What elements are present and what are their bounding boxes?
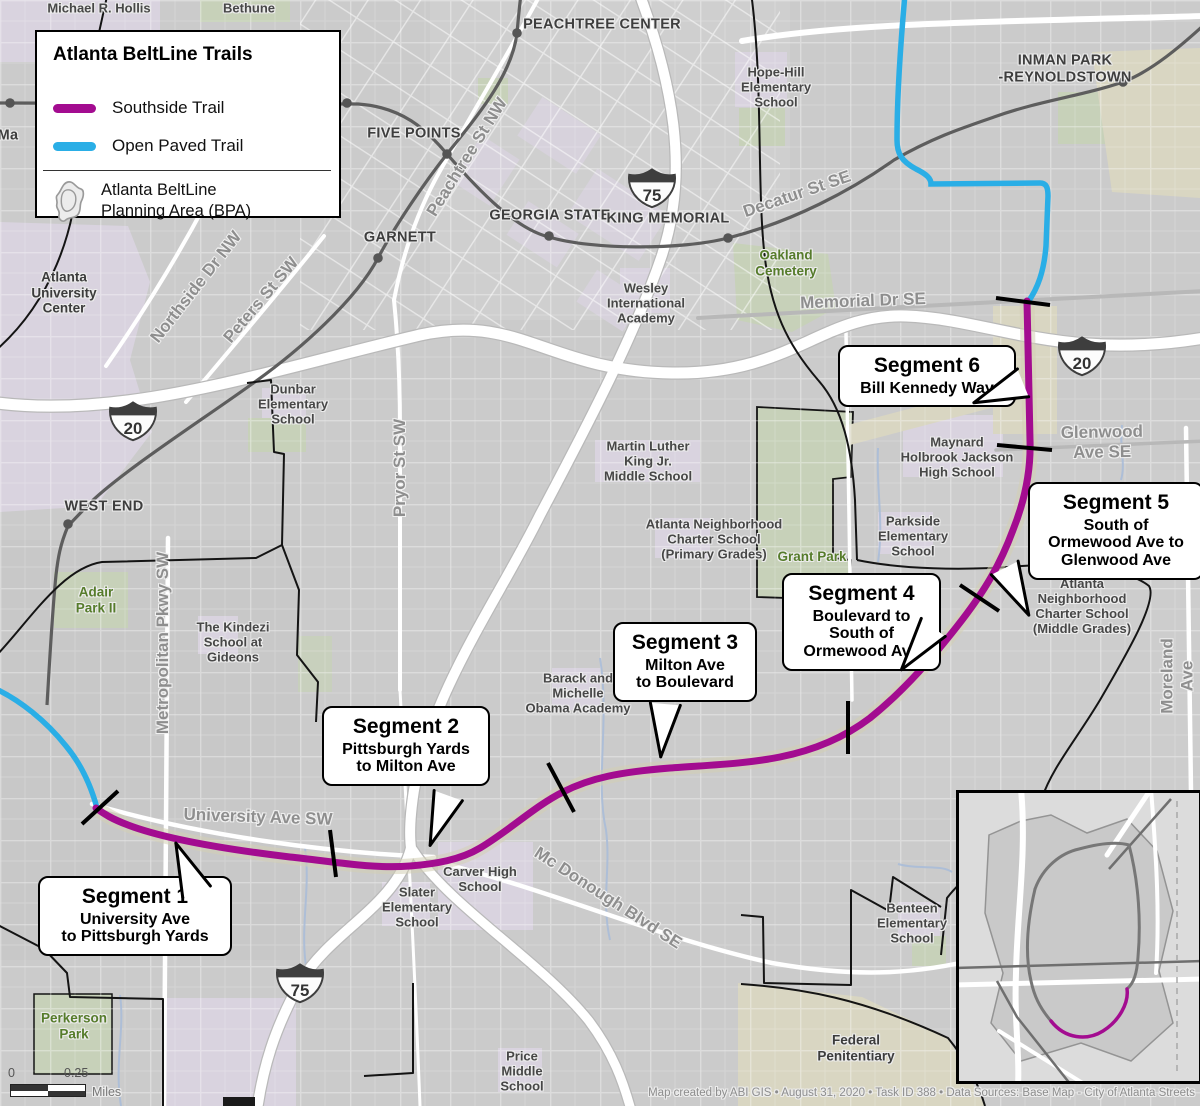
beltline-planning-area-outline-icon — [49, 178, 87, 224]
shield-number: 75 — [643, 186, 662, 205]
scale-bar-graphic — [10, 1084, 86, 1097]
callout-title: Segment 6 — [846, 354, 1008, 378]
station-label-five-points: FIVE POINTS — [367, 126, 461, 143]
southside-trail-swatch-icon — [53, 104, 96, 113]
station-label-partial: Ma — [0, 128, 18, 145]
school-label-slater: Slater Elementary School — [382, 886, 452, 931]
road-label-glenwood-ave: Glenwood Ave SE — [1053, 422, 1152, 463]
callout-title: Segment 4 — [790, 582, 933, 606]
map-credits: Map created by ABI GIS • August 31, 2020… — [648, 1087, 1195, 1099]
school-label-wesley-international: Wesley International Academy — [607, 282, 685, 327]
school-label-maynard-jackson: Maynard Holbrook Jackson High School — [901, 436, 1014, 481]
school-label-hope-hill: Hope-Hill Elementary School — [741, 66, 811, 111]
school-label-mlk-middle: Martin Luther King Jr. Middle School — [604, 440, 692, 485]
park-label-oakland-cemetery: Oakland Cemetery — [755, 247, 817, 278]
station-label-peachtree-center: PEACHTREE CENTER — [523, 17, 681, 34]
callout-pointer — [644, 702, 683, 761]
shield-number: 20 — [1073, 354, 1092, 373]
legend-divider — [43, 170, 331, 171]
segment-3-callout: Segment 3 Milton Ave to Boulevard — [613, 622, 757, 702]
school-label-carver-high: Carver High School — [443, 865, 517, 895]
station-label-garnett: GARNETT — [364, 230, 436, 247]
station-label-west-end: WEST END — [65, 499, 144, 516]
callout-body: Milton Ave to Boulevard — [621, 657, 749, 693]
legend-bpa-label: Atlanta BeltLine Planning Area (BPA) — [101, 180, 251, 221]
school-label-michael-r-hollis: Michael R. Hollis — [47, 2, 150, 17]
legend-panel: Atlanta BeltLine Trails Southside Trail … — [35, 30, 341, 218]
legend-title: Atlanta BeltLine Trails — [53, 44, 339, 66]
area-label-atlanta-university-center: Atlanta University Center — [31, 270, 96, 317]
park-label-grant-park: Grant Park — [777, 549, 846, 565]
scale-zero-label: 0 — [8, 1066, 15, 1080]
school-label-bethune: Bethune — [223, 2, 275, 17]
segment-5-callout: Segment 5 South of Ormewood Ave to Glenw… — [1028, 482, 1200, 580]
road-label-moreland-ave: Moreland Ave — [1157, 638, 1196, 714]
school-label-price-middle: Price Middle School — [500, 1050, 543, 1095]
shield-number: 20 — [124, 419, 143, 438]
legend-item-label: Open Paved Trail — [112, 136, 243, 156]
school-label-parkside: Parkside Elementary School — [878, 515, 948, 560]
park-label-perkerson-park: Perkerson Park — [41, 1010, 107, 1041]
station-label-inman-park-reynoldstown: INMAN PARK -REYNOLDSTOWN — [998, 52, 1131, 85]
school-label-benteen: Benteen Elementary School — [877, 902, 947, 947]
scale-unit-label: Miles — [92, 1085, 121, 1099]
legend-item-label: Southside Trail — [112, 98, 224, 118]
overview-inset-map — [956, 790, 1200, 1084]
callout-body: University Ave to Pittsburgh Yards — [46, 911, 224, 947]
school-label-dunbar: Dunbar Elementary School — [258, 383, 328, 428]
station-label-king-memorial: KING MEMORIAL — [606, 211, 729, 228]
road-label-metropolitan-pkwy: Metropolitan Pkwy SW — [153, 552, 173, 734]
inset-city-area — [985, 815, 1173, 1061]
shield-number: 75 — [291, 981, 310, 1000]
school-label-anc-primary: Atlanta Neighborhood Charter School (Pri… — [646, 518, 783, 563]
school-label-kindezi: The Kindezi School at Gideons — [197, 621, 270, 666]
road-label-pryor-st: Pryor St SW — [390, 419, 410, 517]
callout-body: Pittsburgh Yards to Milton Ave — [330, 741, 482, 777]
callout-title: Segment 3 — [621, 631, 749, 655]
scale-end-label: 0.25 — [64, 1066, 88, 1080]
callout-body: South of Ormewood Ave to Glenwood Ave — [1036, 517, 1196, 571]
area-label-federal-penitentiary: Federal Penitentiary — [817, 1032, 894, 1063]
callout-title: Segment 2 — [330, 715, 482, 739]
park-label-adair-park: Adair Park II — [76, 584, 117, 615]
callout-title: Segment 5 — [1036, 491, 1196, 515]
segment-2-callout: Segment 2 Pittsburgh Yards to Milton Ave — [322, 706, 490, 786]
open-paved-trail-swatch-icon — [53, 142, 96, 151]
beltline-map-canvas: 75 20 20 75 PEACHTREE CENTER FIVE POINTS… — [0, 0, 1200, 1106]
station-label-georgia-state: GEORGIA STATE — [489, 208, 610, 225]
